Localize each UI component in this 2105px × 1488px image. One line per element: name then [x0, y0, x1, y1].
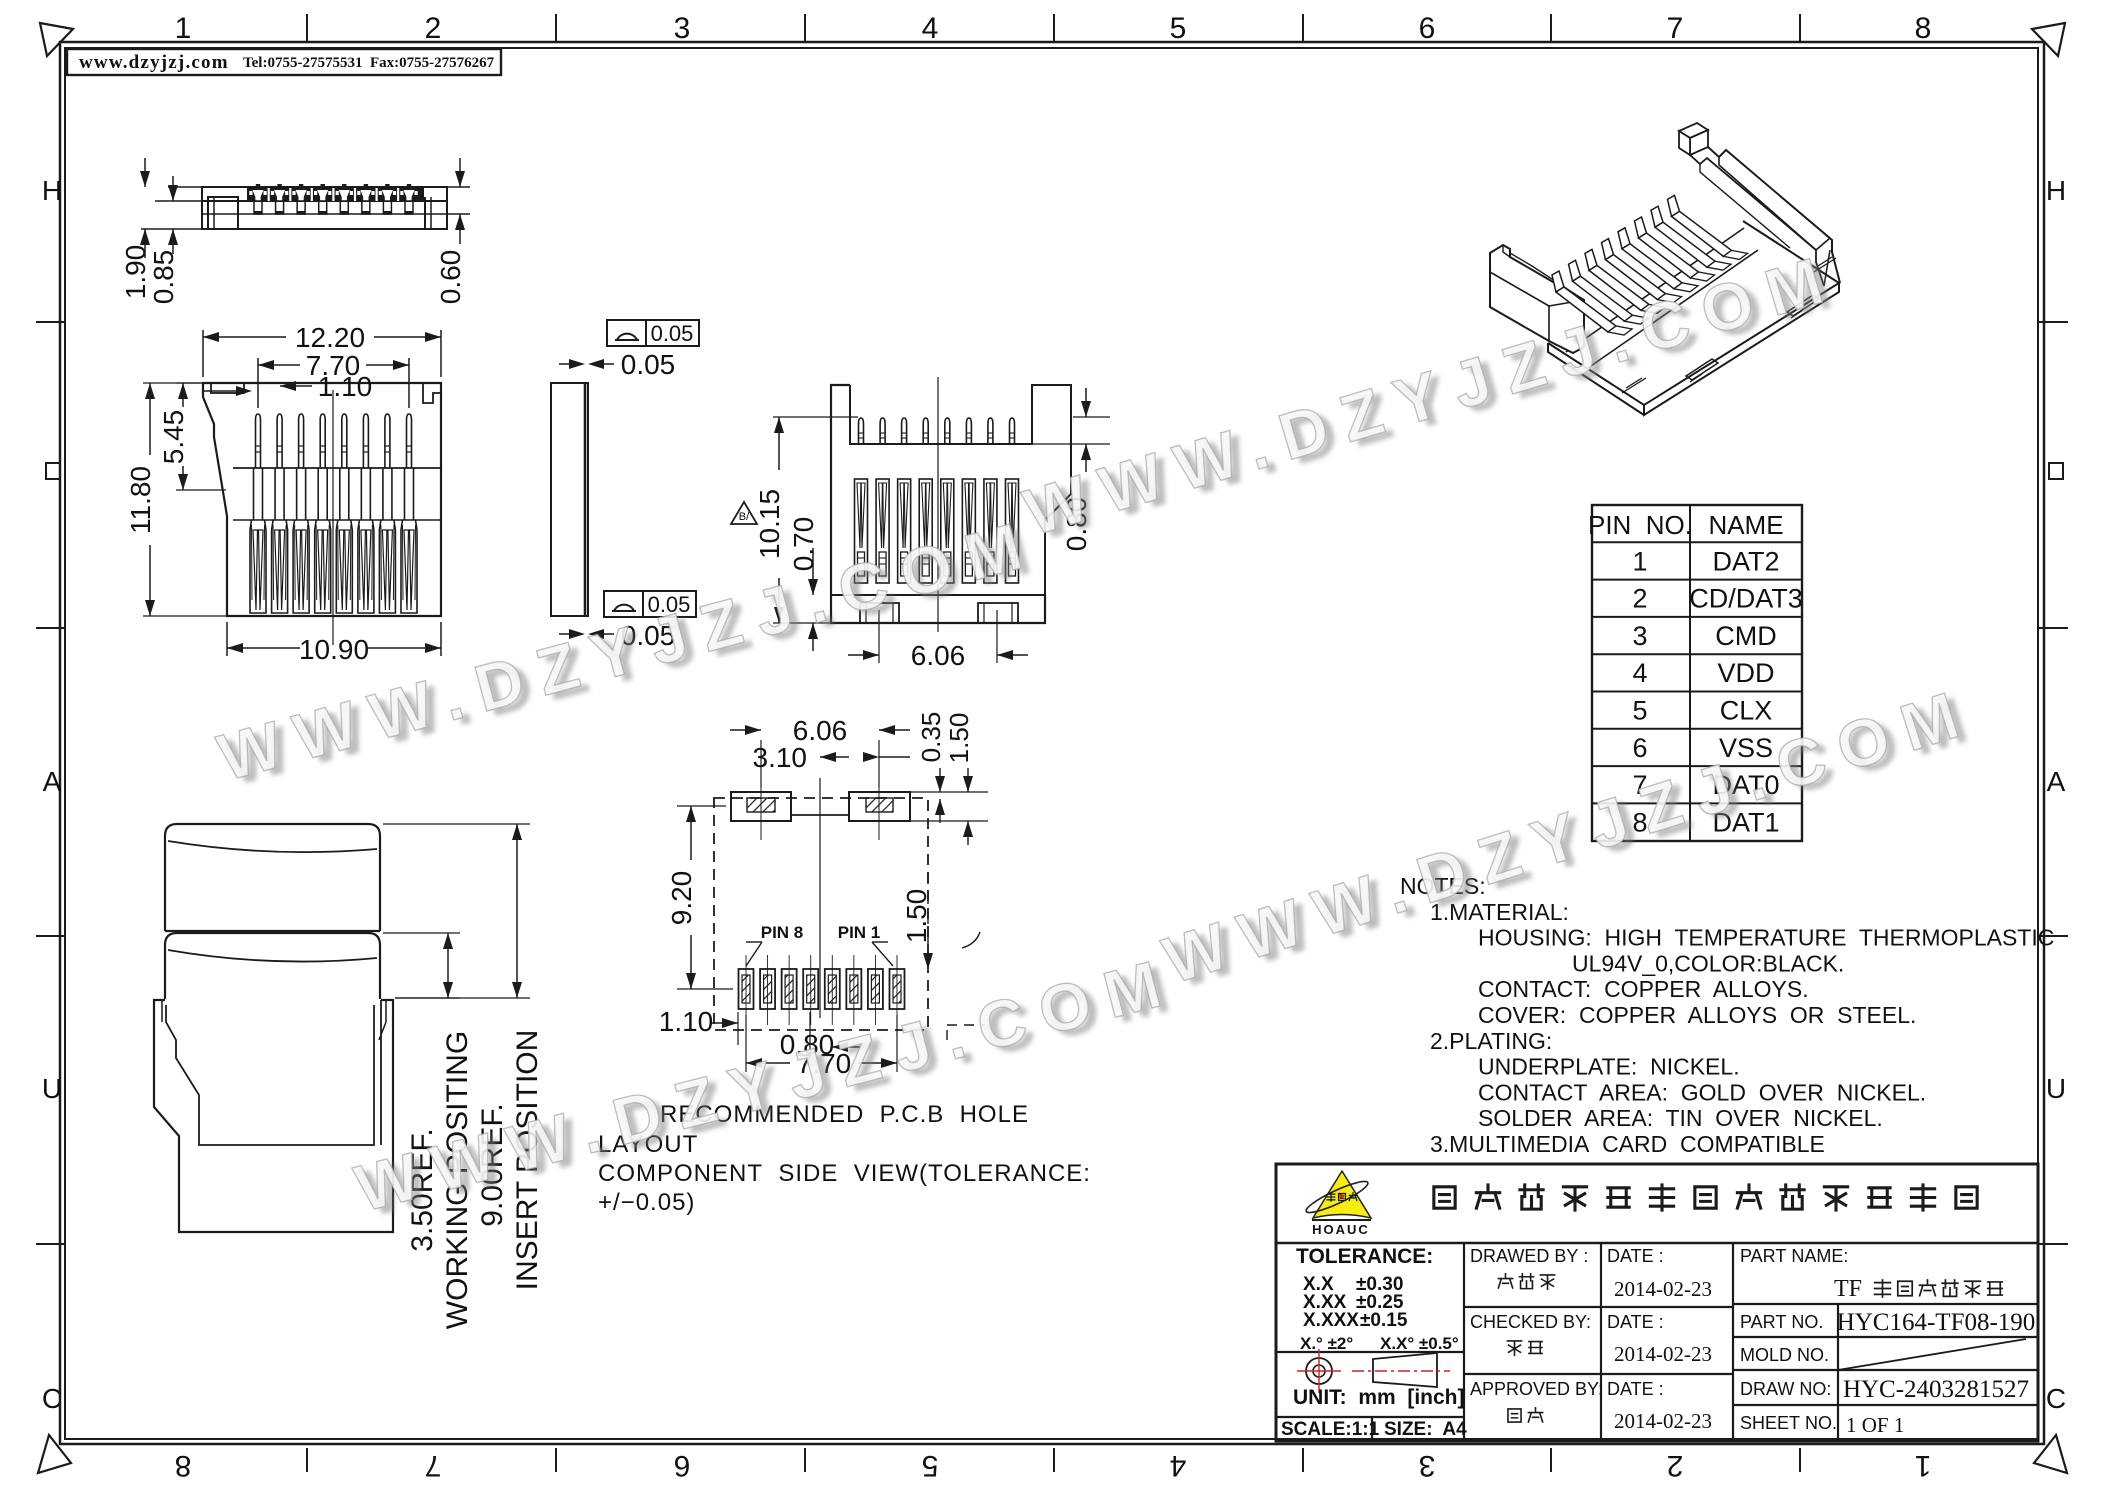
svg-text:2014-02-23: 2014-02-23	[1614, 1409, 1712, 1433]
svg-text:1: 1	[175, 12, 192, 45]
svg-text:8: 8	[175, 1449, 192, 1482]
svg-text:2014-02-23: 2014-02-23	[1614, 1277, 1712, 1301]
svg-text:8: 8	[1915, 12, 1932, 45]
svg-text:SIZE: A4: SIZE: A4	[1384, 1419, 1467, 1440]
svg-text:C: C	[42, 1383, 62, 1414]
svg-text:6: 6	[674, 1449, 691, 1482]
svg-text:DATE :: DATE :	[1607, 1379, 1664, 1399]
svg-text:2014-02-23: 2014-02-23	[1614, 1342, 1712, 1366]
svg-text:4: 4	[1632, 658, 1647, 688]
svg-text:CMD: CMD	[1715, 621, 1777, 651]
svg-text:SCALE:1:1: SCALE:1:1	[1281, 1419, 1380, 1440]
svg-text:DATE :: DATE :	[1607, 1246, 1664, 1266]
svg-text:DRAWED BY :: DRAWED BY :	[1470, 1246, 1588, 1266]
svg-text:5: 5	[922, 1449, 939, 1482]
svg-text:UNIT: mm [inch]: UNIT: mm [inch]	[1293, 1386, 1465, 1409]
svg-text:CLX: CLX	[1720, 696, 1773, 726]
svg-text:7: 7	[1667, 12, 1684, 45]
svg-text:DRAW NO:: DRAW NO:	[1740, 1379, 1831, 1399]
svg-text:1.10: 1.10	[318, 371, 373, 402]
svg-text:3.10: 3.10	[753, 742, 808, 773]
svg-text:0.85: 0.85	[148, 250, 179, 305]
svg-text:HOUSING: HIGH TEMPERATURE T: HOUSING: HIGH TEMPERATURE THERMOPLASTIC	[1478, 925, 2054, 951]
svg-text:2: 2	[1667, 1449, 1684, 1482]
svg-text:0.05: 0.05	[651, 321, 694, 346]
svg-text:10.15: 10.15	[754, 489, 785, 559]
svg-text:MOLD NO.: MOLD NO.	[1740, 1345, 1829, 1365]
svg-text:10.90: 10.90	[299, 634, 369, 665]
svg-text:9.20: 9.20	[666, 871, 697, 926]
svg-text:1.90: 1.90	[120, 245, 151, 300]
svg-text:2.PLATING:: 2.PLATING:	[1430, 1028, 1552, 1054]
svg-text:DAT2: DAT2	[1712, 546, 1779, 576]
svg-text:PART NAME:: PART NAME:	[1740, 1246, 1848, 1266]
svg-text:11.80: 11.80	[125, 466, 156, 534]
svg-text:CONTACT: COPPER ALLOYS.: CONTACT: COPPER ALLOYS.	[1478, 976, 1809, 1002]
svg-text:PIN 8: PIN 8	[761, 923, 804, 942]
svg-text:TOLERANCE:: TOLERANCE:	[1296, 1245, 1433, 1268]
svg-text:DATE :: DATE :	[1607, 1312, 1664, 1332]
svg-text:0.05: 0.05	[621, 349, 676, 380]
svg-text:C: C	[2046, 1383, 2066, 1414]
svg-text:6: 6	[1419, 12, 1436, 45]
svg-text:0.35: 0.35	[916, 712, 946, 763]
svg-text:4: 4	[922, 12, 939, 45]
svg-text:X.° ±2°: X.° ±2°	[1300, 1334, 1353, 1353]
svg-text:X.X° ±0.5°: X.X° ±0.5°	[1380, 1334, 1459, 1353]
svg-text:PART NO.: PART NO.	[1740, 1312, 1823, 1332]
svg-text:6: 6	[1632, 733, 1647, 763]
svg-text:NAME: NAME	[1708, 510, 1783, 540]
svg-text:COVER: COPPER ALLOYS OR ST: COVER: COPPER ALLOYS OR STEEL.	[1478, 1002, 1916, 1028]
svg-text:SHEET NO.: SHEET NO.	[1740, 1413, 1837, 1433]
svg-text:5.45: 5.45	[158, 410, 189, 465]
svg-text:PIN 1: PIN 1	[838, 923, 881, 942]
svg-text:12.20: 12.20	[295, 322, 365, 353]
svg-text:1: 1	[1915, 1449, 1932, 1482]
svg-text:3.MULTIMEDIA CARD COMPATIBLE: 3.MULTIMEDIA CARD COMPATIBLE	[1430, 1131, 1825, 1157]
svg-text:U: U	[42, 1073, 62, 1104]
svg-text:TF: TF	[1834, 1276, 1862, 1302]
svg-text:CD/DAT3: CD/DAT3	[1689, 584, 1803, 614]
svg-text:HOAUC: HOAUC	[1312, 1222, 1370, 1237]
svg-text:A: A	[43, 766, 62, 797]
svg-text:HYC164-TF08-190: HYC164-TF08-190	[1837, 1309, 2036, 1336]
svg-text:1: 1	[1632, 546, 1647, 576]
svg-text:H: H	[2046, 175, 2066, 206]
svg-text:1.10: 1.10	[659, 1006, 714, 1037]
svg-text:Tel:0755-27575531 Fax:0755-27: Tel:0755-27575531 Fax:0755-27576267	[243, 55, 495, 71]
svg-text:H: H	[42, 175, 62, 206]
svg-text:CONTACT AREA: GOLD OVER NI: CONTACT AREA: GOLD OVER NICKEL.	[1478, 1079, 1926, 1105]
svg-text:3: 3	[1419, 1449, 1436, 1482]
svg-text:VDD: VDD	[1717, 658, 1774, 688]
svg-text:APPROVED BY:: APPROVED BY:	[1470, 1379, 1603, 1399]
svg-text:2: 2	[1632, 584, 1647, 614]
svg-text:www.dzyjzj.com: www.dzyjzj.com	[79, 52, 229, 73]
svg-text:CHECKED BY:: CHECKED BY:	[1470, 1312, 1591, 1332]
svg-text:1.50: 1.50	[901, 889, 932, 944]
svg-text:3: 3	[1632, 621, 1647, 651]
svg-text:1 OF 1: 1 OF 1	[1846, 1413, 1904, 1437]
svg-text:5: 5	[1170, 12, 1187, 45]
svg-text:SOLDER AREA: TIN OVER NICK: SOLDER AREA: TIN OVER NICKEL.	[1478, 1105, 1883, 1131]
svg-text:A: A	[2047, 766, 2066, 797]
svg-text:±0.15: ±0.15	[1360, 1310, 1408, 1331]
svg-text:HYC-2403281527: HYC-2403281527	[1843, 1376, 2029, 1403]
svg-text:1.50: 1.50	[944, 713, 974, 764]
svg-text:5: 5	[1632, 696, 1647, 726]
svg-text:UL94V_0,COLOR:BLACK.: UL94V_0,COLOR:BLACK.	[1572, 950, 1844, 976]
svg-text:UNDERPLATE: NICKEL.: UNDERPLATE: NICKEL.	[1478, 1054, 1740, 1080]
svg-text:2: 2	[425, 12, 442, 45]
svg-text:7: 7	[425, 1449, 442, 1482]
svg-text:PIN NO.: PIN NO.	[1588, 510, 1692, 540]
svg-text:4: 4	[1170, 1449, 1187, 1482]
svg-text:0.60: 0.60	[435, 250, 466, 305]
svg-text:6.06: 6.06	[911, 640, 966, 671]
svg-text:+/−0.05): +/−0.05)	[598, 1189, 695, 1216]
svg-text:X.XXX: X.XXX	[1303, 1310, 1359, 1331]
svg-text:COMPONENT SIDE VIEW(TOLERANC: COMPONENT SIDE VIEW(TOLERANCE:	[598, 1160, 1091, 1187]
svg-text:B/: B/	[739, 511, 750, 523]
svg-text:U: U	[2046, 1073, 2066, 1104]
svg-text:3: 3	[674, 12, 691, 45]
